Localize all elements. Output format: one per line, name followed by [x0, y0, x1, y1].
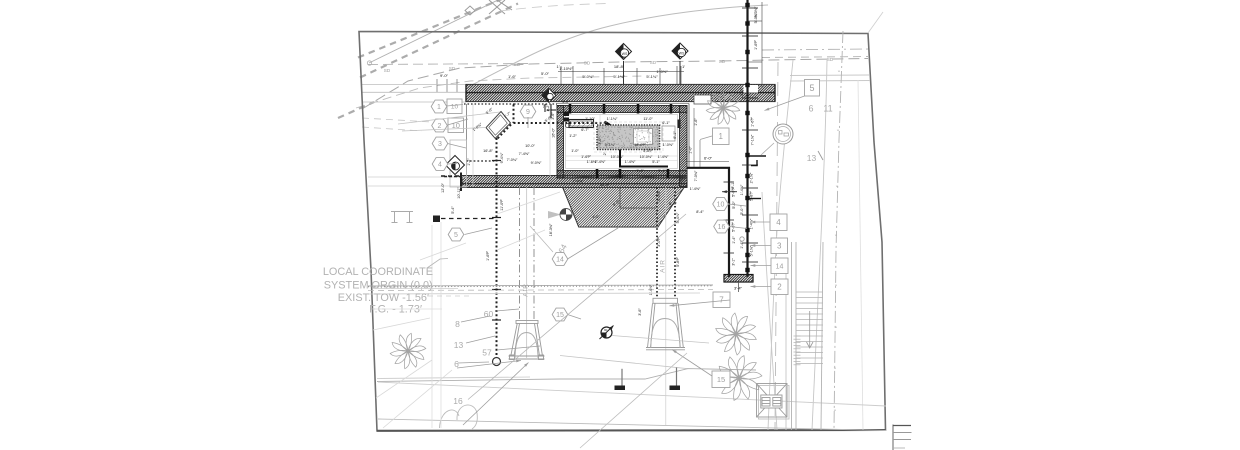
svg-text:4: 4 — [776, 218, 781, 227]
svg-text:1′: 1′ — [557, 64, 560, 69]
svg-text:5′-4″: 5′-4″ — [451, 206, 455, 214]
svg-text:2′: 2′ — [603, 152, 607, 155]
svg-text:16′-3″: 16′-3″ — [615, 174, 625, 178]
svg-text:18′-0⅟″: 18′-0⅟″ — [634, 143, 646, 147]
svg-text:6′-1″: 6′-1″ — [673, 131, 677, 139]
svg-text:16′-3¾″: 16′-3¾″ — [549, 223, 553, 236]
svg-text:1′: 1′ — [682, 64, 685, 69]
svg-text:6′-7″: 6′-7″ — [581, 128, 589, 132]
svg-text:1′-1¾″: 1′-1¾″ — [607, 117, 618, 121]
svg-text:8′-4″: 8′-4″ — [696, 210, 704, 214]
svg-text:11′-0⅟″: 11′-0⅟″ — [500, 199, 504, 211]
svg-text:AIR: AIR — [660, 259, 667, 273]
svg-text:SD: SD — [449, 66, 456, 71]
svg-text:5′-0¾″: 5′-0¾″ — [582, 74, 594, 79]
svg-text:1: 1 — [437, 104, 441, 111]
svg-text:16: 16 — [718, 224, 726, 231]
svg-text:1: 1 — [719, 132, 724, 141]
svg-text:3′-0″: 3′-0″ — [598, 137, 602, 145]
svg-text:15: 15 — [717, 375, 725, 384]
svg-text:7′: 7′ — [543, 105, 546, 109]
svg-text:1′-6″: 1′-6″ — [694, 118, 698, 126]
svg-text:EXIST. TOW -1.56′: EXIST. TOW -1.56′ — [338, 292, 429, 304]
svg-text:3′-0⅟″: 3′-0⅟″ — [657, 236, 661, 246]
svg-text:11′-0″: 11′-0″ — [643, 117, 653, 121]
svg-text:1′-6⅟″: 1′-6⅟″ — [751, 116, 755, 126]
svg-text:5′-0″: 5′-0″ — [541, 71, 550, 76]
svg-text:SD: SD — [719, 59, 726, 64]
svg-text:11: 11 — [823, 104, 832, 114]
svg-text:9: 9 — [526, 109, 530, 116]
svg-text:16′-0″: 16′-0″ — [552, 128, 556, 138]
svg-text:30′-8″: 30′-8″ — [600, 183, 610, 187]
svg-text:1′-6⅟″: 1′-6⅟″ — [581, 155, 591, 159]
svg-text:60: 60 — [484, 309, 494, 319]
svg-text:7: 7 — [719, 296, 724, 305]
svg-text:5′-1″: 5′-1″ — [658, 169, 666, 173]
svg-text:2′-1¾″: 2′-1¾″ — [750, 172, 754, 183]
svg-text:2: 2 — [777, 283, 782, 292]
svg-text:1′-2″: 1′-2″ — [467, 158, 471, 166]
svg-text:1′-0″: 1′-0″ — [689, 146, 693, 154]
svg-text:4′-0″: 4′-0″ — [592, 215, 600, 219]
svg-text:7′-0¾″: 7′-0¾″ — [694, 170, 698, 181]
svg-text:SD: SD — [384, 68, 391, 73]
svg-text:5′-0¾″: 5′-0¾″ — [657, 190, 661, 201]
svg-text:10′-0⅛″: 10′-0⅛″ — [640, 155, 653, 159]
svg-text:1′-6⅟″: 1′-6⅟″ — [754, 39, 758, 49]
svg-text:1′-4⅝″: 1′-4⅝″ — [740, 184, 744, 195]
svg-text:9′-0″: 9′-0″ — [440, 73, 449, 78]
svg-text:1′-0⅝″: 1′-0⅝″ — [656, 69, 668, 74]
svg-text:1′-4⅝″: 1′-4⅝″ — [658, 155, 669, 159]
svg-text:3: 3 — [438, 141, 442, 148]
svg-text:9′-4⅝″: 9′-4⅝″ — [500, 152, 504, 163]
svg-text:WS: WS — [622, 52, 628, 56]
svg-text:6′-0″: 6′-0″ — [704, 156, 713, 161]
svg-text:LOCAL COORDINATE: LOCAL COORDINATE — [323, 266, 433, 278]
svg-text:WS: WS — [679, 51, 685, 55]
svg-text:7′-0¾″: 7′-0¾″ — [507, 158, 518, 162]
svg-text:1′-6⅟″: 1′-6⅟″ — [486, 250, 490, 260]
svg-text:18′-8″: 18′-8″ — [614, 64, 625, 69]
svg-text:SD: SD — [827, 57, 834, 62]
svg-text:8: 8 — [455, 319, 460, 329]
svg-text:5′-1¾″: 5′-1¾″ — [613, 74, 625, 79]
svg-text:6: 6 — [808, 104, 813, 114]
svg-text:57: 57 — [482, 348, 492, 358]
svg-text:2′-1″: 2′-1″ — [731, 181, 735, 189]
svg-text:10′-11″: 10′-11″ — [457, 187, 461, 199]
svg-text:4: 4 — [438, 162, 442, 169]
svg-text:5′-0″: 5′-0″ — [740, 88, 744, 96]
svg-text:1′-4″: 1′-4″ — [732, 236, 736, 244]
svg-text:1′-4⅝″: 1′-4⅝″ — [625, 160, 636, 164]
svg-text:16′-8″: 16′-8″ — [483, 149, 493, 153]
svg-text:5′-1″: 5′-1″ — [652, 160, 660, 164]
svg-text:15: 15 — [556, 312, 564, 319]
svg-text:1′-4⅝″: 1′-4⅝″ — [649, 284, 653, 295]
svg-text:1′-0″: 1′-0″ — [571, 149, 579, 153]
svg-text:SD: SD — [650, 60, 657, 65]
svg-text:9′-0⅝″: 9′-0⅝″ — [531, 161, 542, 165]
svg-text:10′-0″: 10′-0″ — [525, 144, 535, 148]
svg-text:F.G. - 1.73′: F.G. - 1.73′ — [369, 304, 422, 316]
svg-text:90: 90 — [604, 328, 608, 332]
svg-text:5′-1¾″: 5′-1¾″ — [605, 143, 616, 147]
svg-text:3′-6″: 3′-6″ — [638, 308, 642, 316]
svg-text:7′-4⅝″: 7′-4⅝″ — [573, 180, 584, 184]
svg-text:5′-0¾″: 5′-0¾″ — [754, 6, 758, 17]
svg-text:SYSTEM ORGIN (0,0): SYSTEM ORGIN (0,0) — [324, 279, 433, 291]
svg-text:5′-8⅟″: 5′-8⅟″ — [750, 190, 754, 200]
svg-text:1′-10″: 1′-10″ — [585, 117, 595, 121]
svg-text:5′-1¾″: 5′-1¾″ — [646, 74, 658, 79]
svg-text:1′-4⅝″: 1′-4⅝″ — [750, 218, 754, 229]
svg-text:1′-4″: 1′-4″ — [636, 169, 644, 173]
svg-text:16: 16 — [453, 396, 463, 406]
svg-text:5: 5 — [809, 83, 814, 93]
svg-text:1′-10½″: 1′-10½″ — [559, 66, 573, 71]
svg-text:6′-1″: 6′-1″ — [662, 121, 670, 125]
svg-text:7′-1¾″: 7′-1¾″ — [751, 134, 755, 145]
svg-text:3′-1″: 3′-1″ — [732, 258, 736, 266]
svg-text:12′-0″: 12′-0″ — [441, 183, 445, 193]
svg-text:5′-8⅟″: 5′-8⅟″ — [643, 149, 653, 153]
svg-text:1′-6″: 1′-6″ — [508, 74, 517, 79]
svg-text:13: 13 — [454, 340, 464, 350]
svg-text:2: 2 — [438, 123, 442, 130]
svg-text:8′-0″: 8′-0″ — [669, 201, 678, 206]
svg-text:1′-2″: 1′-2″ — [569, 134, 577, 138]
svg-text:14: 14 — [556, 257, 564, 264]
svg-text:3′-4″: 3′-4″ — [734, 286, 743, 291]
svg-text:10: 10 — [717, 202, 725, 209]
svg-text:1′-4″: 1′-4″ — [740, 241, 744, 249]
svg-text:7′-4⅝″: 7′-4⅝″ — [519, 152, 530, 156]
svg-text:5′-4⅝″: 5′-4⅝″ — [676, 212, 680, 223]
svg-text:5′-8⅟″: 5′-8⅟″ — [676, 256, 680, 266]
svg-text:1′-4⅝″: 1′-4⅝″ — [595, 160, 606, 164]
svg-text:5: 5 — [454, 232, 458, 239]
svg-text:3: 3 — [777, 242, 782, 251]
svg-text:SD: SD — [584, 61, 591, 66]
svg-text:5′-1¾″: 5′-1¾″ — [750, 245, 754, 256]
svg-text:1′-4⅝″: 1′-4⅝″ — [690, 187, 701, 191]
svg-text:14: 14 — [776, 263, 784, 270]
svg-text:5′-0⁻″: 5′-0⁻″ — [740, 205, 744, 215]
svg-text:1′-0⅝″: 1′-0⅝″ — [663, 143, 674, 147]
svg-text:10′-0⅛″: 10′-0⅛″ — [611, 155, 624, 159]
svg-text:13: 13 — [807, 153, 817, 163]
